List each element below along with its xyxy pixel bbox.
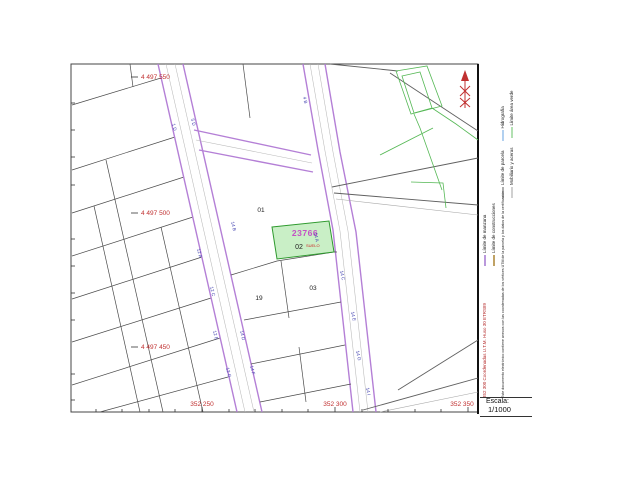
legend-label: Mobiliario y aceras bbox=[509, 147, 514, 185]
legend-label: Límite de construcciones bbox=[491, 203, 496, 253]
street-number: 5 D bbox=[190, 118, 197, 127]
legend-item-mobiliario: Mobiliario y aceras bbox=[509, 147, 514, 198]
street-number: 14 C bbox=[339, 270, 346, 281]
block-middle-parcels bbox=[231, 252, 351, 402]
cadastral-map: 23766 02 SUELO 01 19 03 bbox=[0, 0, 640, 480]
green-area-limits bbox=[380, 66, 478, 208]
line-swatch-icon bbox=[492, 255, 496, 266]
parcel-03-label: 03 bbox=[309, 285, 317, 292]
line-swatch-icon bbox=[501, 130, 505, 141]
line-swatch-icon bbox=[510, 187, 514, 198]
street-number: 14 G bbox=[355, 350, 362, 361]
legend-row-2: Límite de construcciones bbox=[489, 64, 498, 398]
certificate-disclaimer: Este documento electrónico contiene anex… bbox=[501, 198, 505, 398]
street-number: 4 B bbox=[302, 96, 308, 104]
street-number: 14 E bbox=[350, 311, 357, 321]
block-top-parcels bbox=[243, 64, 250, 118]
street-number: 12 G bbox=[225, 367, 232, 378]
street-cross-top bbox=[194, 130, 313, 172]
legend-row-1: 352 300 Coordenadas U.T.M. Huso 30 ETRS8… bbox=[480, 64, 489, 398]
parcel-19-label: 19 bbox=[255, 295, 263, 302]
parcel-grid-southwest bbox=[72, 64, 228, 412]
legend-label: Límite de manzana bbox=[482, 215, 487, 253]
street-number: 14 D bbox=[239, 330, 246, 341]
x-grid-label: 352 250 bbox=[190, 401, 214, 408]
y-grid-label: 4 497 550 bbox=[141, 74, 170, 81]
legend-item-area-verde: Límite área verde bbox=[509, 90, 514, 138]
y-grid-label: 4 497 450 bbox=[141, 344, 170, 351]
street-number: 12 E bbox=[212, 330, 219, 340]
utm-datum-note: 352 300 Coordenadas U.T.M. Huso 30 ETRS8… bbox=[482, 266, 487, 398]
legend-row-3: Este documento electrónico contiene anex… bbox=[498, 64, 507, 398]
street-left bbox=[158, 64, 262, 412]
legend-item-hidrografia: Hidrografía bbox=[500, 106, 505, 141]
legend-item-manzana: Límite de manzana bbox=[482, 215, 487, 266]
legend-strip: 352 300 Coordenadas U.T.M. Huso 30 ETRS8… bbox=[480, 64, 522, 398]
line-swatch-icon bbox=[510, 127, 514, 138]
parcel-01-label: 01 bbox=[257, 207, 265, 214]
parcel-02-label: 02 bbox=[295, 244, 303, 251]
legend-label: Límite área verde bbox=[509, 90, 514, 125]
legend-item-construcciones: Límite de construcciones bbox=[491, 203, 496, 266]
scale-value: 1/1000 bbox=[480, 406, 532, 414]
frame-ticks bbox=[71, 103, 468, 412]
cadastral-certificate-page: 23766 02 SUELO 01 19 03 bbox=[0, 0, 640, 480]
northeast-lines bbox=[330, 64, 478, 412]
legend-label: Límite de parcela bbox=[500, 150, 505, 185]
street-number: 14 B bbox=[230, 221, 237, 231]
line-swatch-icon bbox=[501, 187, 505, 198]
north-arrow-icon bbox=[460, 70, 470, 108]
legend-rotated-content: 352 300 Coordenadas U.T.M. Huso 30 ETRS8… bbox=[480, 64, 522, 398]
suelo-tag: SUELO bbox=[306, 243, 320, 248]
y-grid-label: 4 497 500 bbox=[141, 210, 170, 217]
highlighted-parcel-shape bbox=[272, 221, 334, 259]
x-grid-label: 352 300 bbox=[323, 401, 347, 408]
scale-box: Escala: 1/1000 bbox=[480, 397, 532, 417]
legend-item-parcela: Límite de parcela bbox=[500, 150, 505, 198]
x-grid-label: 352 350 bbox=[450, 401, 474, 408]
legend-label: Hidrografía bbox=[500, 106, 505, 128]
line-swatch-icon bbox=[483, 255, 487, 266]
street-number: 1 D bbox=[171, 123, 178, 132]
highlighted-parcel: 23766 02 SUELO bbox=[272, 221, 334, 259]
street-number: 14 F bbox=[249, 365, 256, 375]
legend-row-4: Mobiliario y aceras Límite área verde bbox=[507, 64, 516, 398]
